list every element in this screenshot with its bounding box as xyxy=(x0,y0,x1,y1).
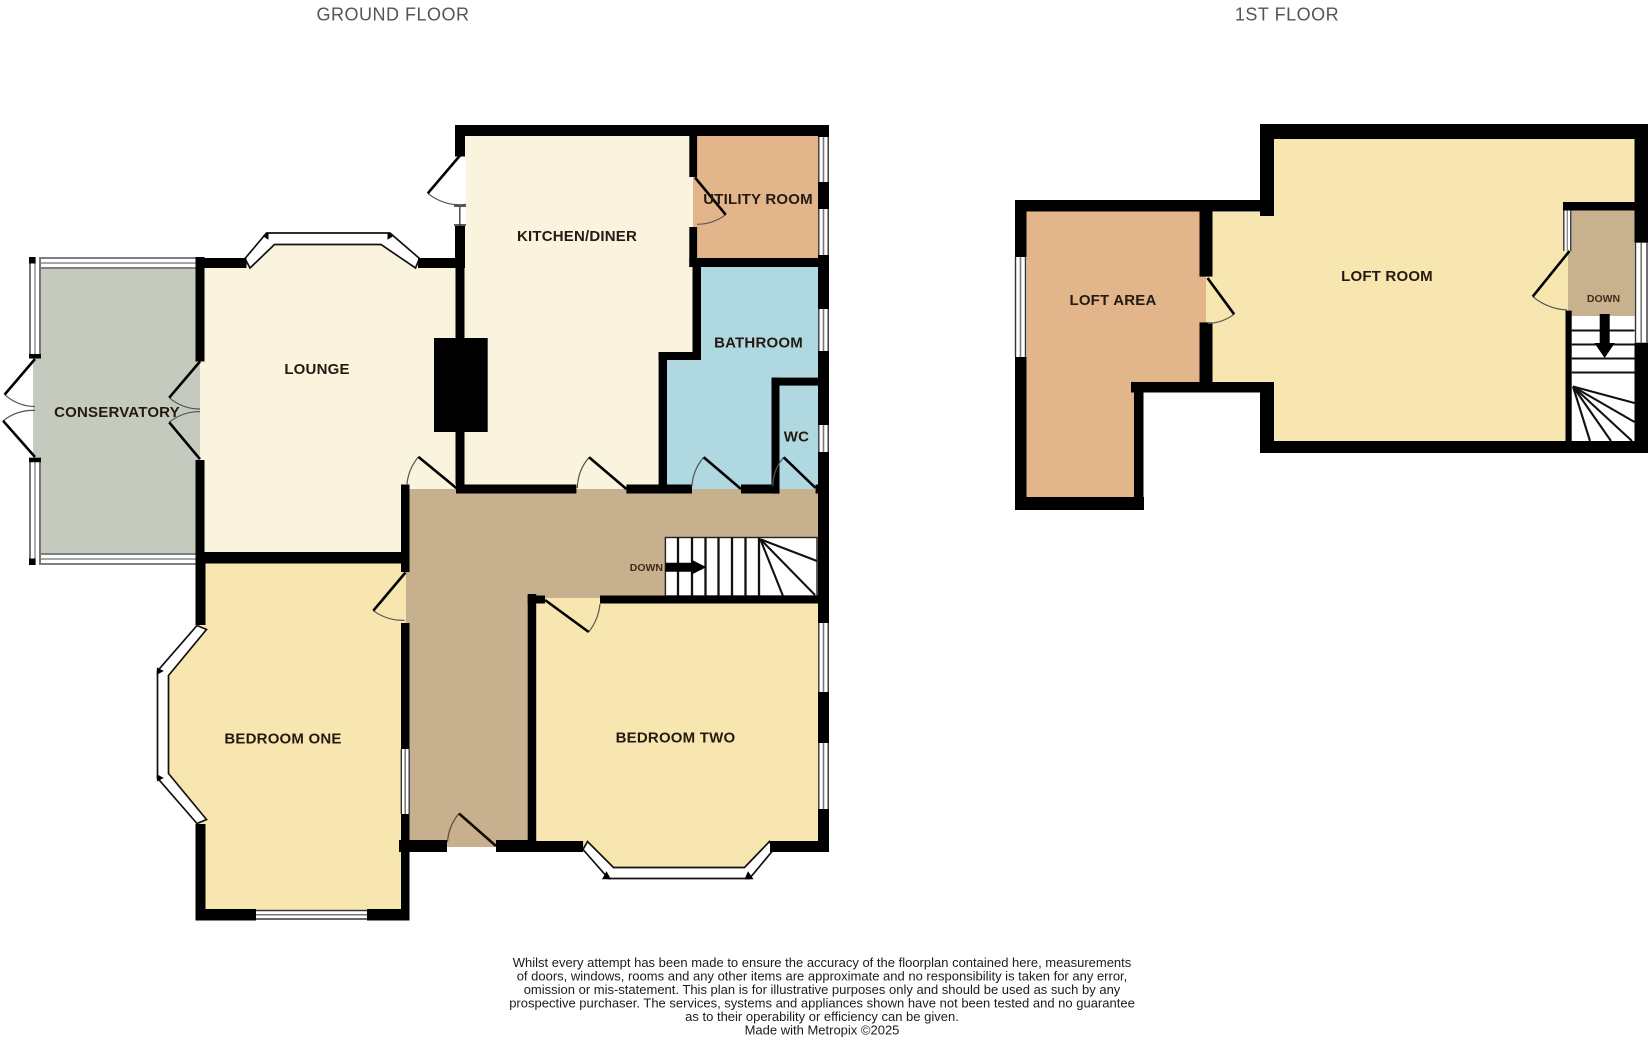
svg-text:LOFT AREA: LOFT AREA xyxy=(1069,292,1156,309)
svg-text:1ST FLOOR: 1ST FLOOR xyxy=(1235,5,1339,25)
svg-text:UTILITY ROOM: UTILITY ROOM xyxy=(703,191,813,208)
svg-text:DOWN: DOWN xyxy=(630,562,663,574)
svg-text:BATHROOM: BATHROOM xyxy=(714,335,803,352)
svg-text:CONSERVATORY: CONSERVATORY xyxy=(54,404,180,421)
svg-text:LOUNGE: LOUNGE xyxy=(284,361,349,378)
svg-text:DOWN: DOWN xyxy=(1587,293,1620,305)
svg-text:GROUND FLOOR: GROUND FLOOR xyxy=(316,5,469,25)
svg-text:Made with Metropix ©2025: Made with Metropix ©2025 xyxy=(745,1023,900,1038)
svg-text:KITCHEN/DINER: KITCHEN/DINER xyxy=(517,228,637,245)
svg-text:BEDROOM ONE: BEDROOM ONE xyxy=(224,731,341,748)
svg-text:WC: WC xyxy=(784,429,809,446)
svg-text:LOFT ROOM: LOFT ROOM xyxy=(1341,268,1433,285)
svg-text:BEDROOM TWO: BEDROOM TWO xyxy=(616,730,736,747)
